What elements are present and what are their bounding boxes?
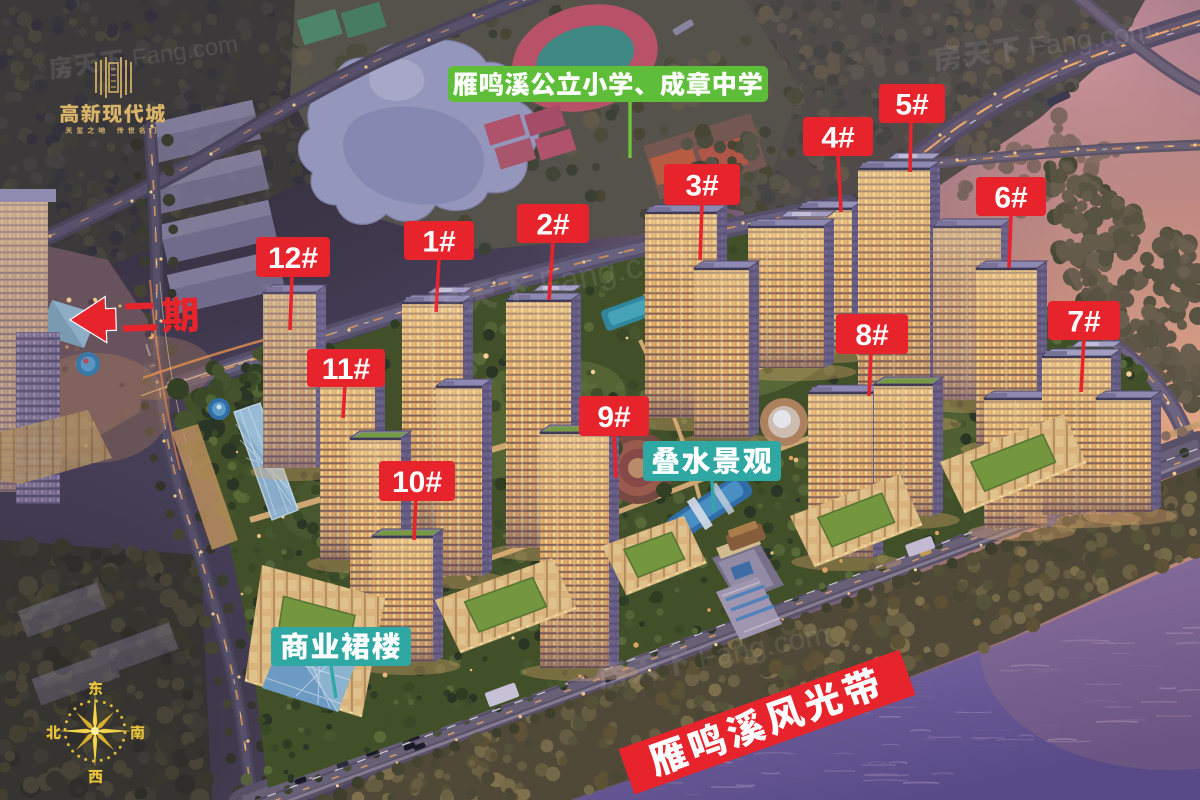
svg-text:1#: 1# — [422, 225, 456, 258]
svg-text:2#: 2# — [536, 208, 570, 241]
svg-text:10#: 10# — [392, 466, 442, 499]
svg-text:12#: 12# — [268, 242, 318, 275]
svg-text:5#: 5# — [895, 88, 929, 121]
svg-text:7#: 7# — [1067, 305, 1101, 338]
svg-text:11#: 11# — [322, 353, 371, 386]
svg-text:6#: 6# — [994, 181, 1028, 214]
svg-text:4#: 4# — [821, 121, 855, 154]
svg-text:8#: 8# — [855, 319, 889, 352]
svg-text:9#: 9# — [597, 401, 631, 434]
svg-text:3#: 3# — [685, 169, 719, 202]
